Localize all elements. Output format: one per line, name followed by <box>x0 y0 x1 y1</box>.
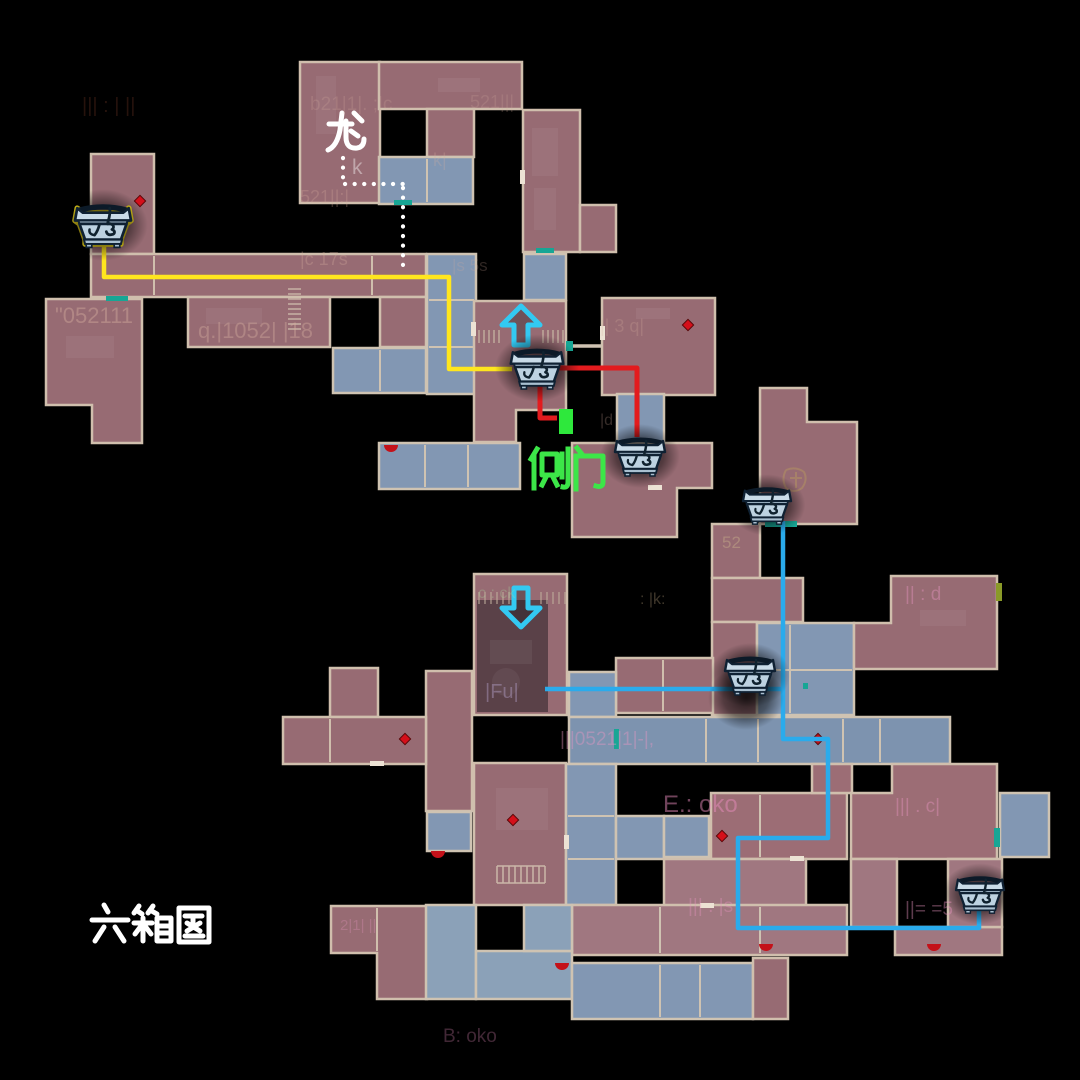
svg-text:|| : d: || : d <box>905 584 941 605</box>
svg-text:k: k <box>352 156 363 179</box>
svg-text:||= =5: ||= =5 <box>905 899 953 920</box>
svg-text:521|||: 521||| <box>470 92 514 112</box>
svg-text:E.: oko: E.: oko <box>663 791 738 818</box>
svg-text:52: 52 <box>722 533 741 552</box>
svg-text:k|: k| <box>433 150 447 170</box>
svg-text:2|1| ||: 2|1| || <box>340 917 376 934</box>
svg-text:||| . c|: ||| . c| <box>895 796 940 817</box>
svg-text:|Fu|: |Fu| <box>485 681 519 703</box>
svg-text:||| : | ||: ||| : | || <box>82 95 135 117</box>
svg-text:|d: |d <box>600 412 613 429</box>
svg-text:||| . |s: ||| . |s <box>688 896 733 917</box>
svg-text:521||:|: 521||:| <box>300 187 349 207</box>
svg-text:B: oko: B: oko <box>443 1026 497 1047</box>
svg-text:|c 17s: |c 17s <box>300 249 348 269</box>
svg-text:|s 5s: |s 5s <box>452 256 488 275</box>
svg-text:b21|1|. ;|c: b21|1|. ;|c <box>310 94 392 115</box>
svg-text:q.|1052| |18: q.|1052| |18 <box>198 318 313 343</box>
svg-text:|||0521|1|-|,: |||0521|1|-|, <box>560 729 654 750</box>
svg-text:|| 3 q|: || 3 q| <box>600 316 644 336</box>
svg-text:"052111: "052111 <box>55 303 133 328</box>
svg-text:: |k:: : |k: <box>640 591 666 608</box>
svg-text:c : ck: c : ck <box>478 585 516 602</box>
